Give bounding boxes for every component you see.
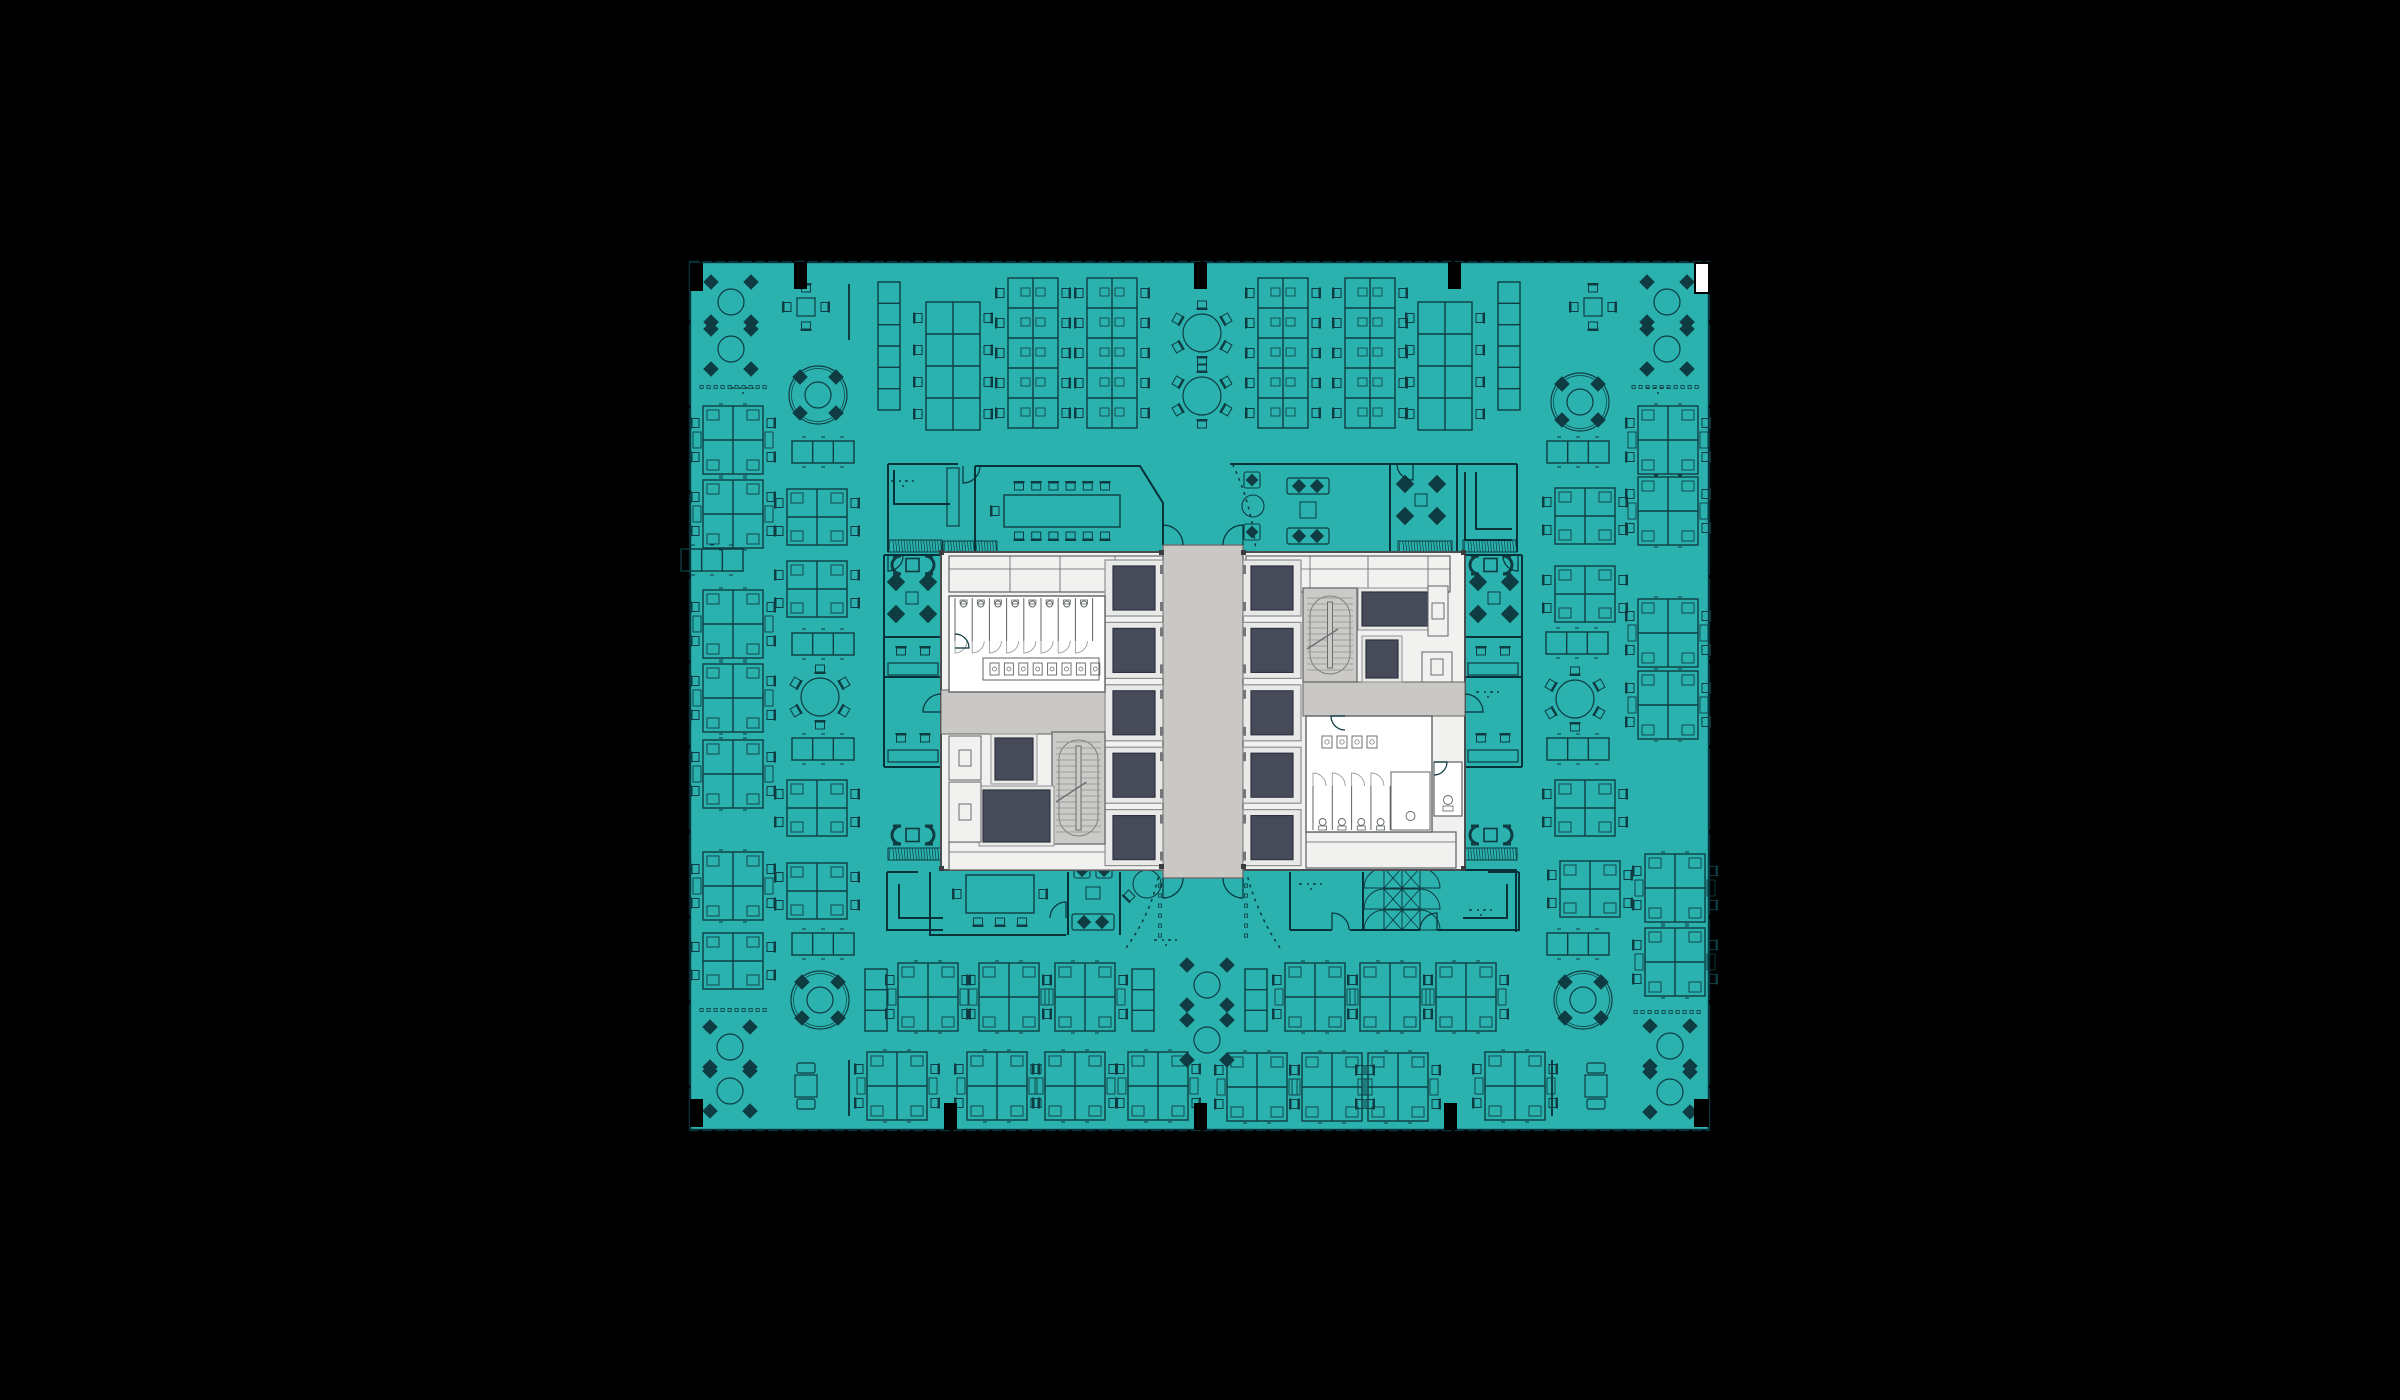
furniture-cluster4 bbox=[1548, 861, 1632, 917]
mullion-tick bbox=[1709, 405, 1716, 408]
elevator-cab bbox=[1113, 628, 1155, 672]
mullion-tick bbox=[683, 320, 690, 323]
core-bottom-band bbox=[1306, 832, 1456, 868]
core-column bbox=[939, 866, 944, 871]
mullion-tick bbox=[1623, 255, 1626, 262]
mullion-tick bbox=[1544, 255, 1547, 262]
mullion-tick bbox=[1557, 1130, 1560, 1137]
mullion-tick bbox=[1069, 255, 1072, 262]
mullion-tick bbox=[818, 255, 821, 262]
mullion-tick bbox=[1227, 1130, 1230, 1137]
column-stub bbox=[1194, 1103, 1207, 1130]
elevator-door-jamb bbox=[1160, 664, 1163, 673]
elevator-door-jamb bbox=[1243, 752, 1246, 761]
mullion-tick bbox=[963, 1130, 966, 1137]
service-room-fill bbox=[1366, 640, 1398, 678]
mullion-tick bbox=[1491, 1130, 1494, 1137]
mullion-tick bbox=[683, 915, 690, 918]
mullion-tick bbox=[1597, 1130, 1600, 1137]
mullion-tick bbox=[857, 255, 860, 262]
mullion-tick bbox=[1293, 1130, 1296, 1137]
mullion-tick bbox=[1649, 255, 1652, 262]
mullion-tick bbox=[725, 255, 728, 262]
furniture-cluster6 bbox=[1033, 1050, 1117, 1122]
mullion-tick bbox=[1649, 1130, 1652, 1137]
mullion-tick bbox=[1689, 1130, 1692, 1137]
furniture-cluster4 bbox=[1543, 566, 1627, 622]
mullion-tick bbox=[1504, 1130, 1507, 1137]
mullion-tick bbox=[1709, 745, 1716, 748]
restroom-room bbox=[1306, 716, 1432, 832]
mullion-tick bbox=[989, 255, 992, 262]
mullion-tick bbox=[1709, 660, 1716, 663]
mullion-tick bbox=[1372, 1130, 1375, 1137]
mullion-tick bbox=[937, 255, 940, 262]
mullion-tick bbox=[818, 1130, 821, 1137]
elevator-cab bbox=[1113, 753, 1155, 797]
mullion-tick bbox=[1709, 320, 1716, 323]
column-stub bbox=[944, 1103, 957, 1130]
elevator-cell bbox=[1105, 560, 1163, 616]
mullion-tick bbox=[1029, 255, 1032, 262]
mullion-tick bbox=[950, 1130, 953, 1137]
mullion-tick bbox=[1425, 1130, 1428, 1137]
mullion-tick bbox=[1676, 1130, 1679, 1137]
mullion-tick bbox=[976, 1130, 979, 1137]
mullion-tick bbox=[712, 1130, 715, 1137]
mullion-tick bbox=[1280, 1130, 1283, 1137]
furniture-cluster4 bbox=[775, 561, 859, 617]
elevator-door-jamb bbox=[1160, 852, 1163, 861]
mens-restroom bbox=[949, 596, 1105, 692]
mullion-tick bbox=[683, 1085, 690, 1088]
furniture-cluster6 bbox=[1626, 475, 1710, 547]
elevator-door-jamb bbox=[1160, 602, 1163, 611]
elevator-door-jamb bbox=[1243, 664, 1246, 673]
mullion-tick bbox=[1121, 1130, 1124, 1137]
mullion-tick bbox=[1240, 255, 1243, 262]
mullion-tick bbox=[1306, 255, 1309, 262]
service-room-fill bbox=[1362, 592, 1428, 626]
furniture-cluster6 bbox=[1473, 1050, 1557, 1122]
mullion-tick bbox=[683, 405, 690, 408]
mullion-tick bbox=[1253, 1130, 1256, 1137]
mullion-tick bbox=[1412, 255, 1415, 262]
mullion-tick bbox=[1267, 255, 1270, 262]
mullion-tick bbox=[950, 255, 953, 262]
mullion-tick bbox=[1214, 255, 1217, 262]
mullion-tick bbox=[1385, 255, 1388, 262]
core-column bbox=[1159, 864, 1164, 869]
elevator-door-jamb bbox=[1243, 690, 1246, 699]
mullion-tick bbox=[1003, 255, 1006, 262]
mullion-tick bbox=[1319, 1130, 1322, 1137]
mullion-tick bbox=[884, 255, 887, 262]
furniture-cluster6 bbox=[855, 1050, 939, 1122]
mullion-tick bbox=[910, 255, 913, 262]
mullion-tick bbox=[683, 745, 690, 748]
mullion-tick bbox=[844, 1130, 847, 1137]
elevator-door-jamb bbox=[1243, 727, 1246, 736]
elevator-cell bbox=[1105, 685, 1163, 741]
mullion-tick bbox=[1676, 255, 1679, 262]
furniture-cluster6 bbox=[1356, 1051, 1440, 1123]
elevator-cab bbox=[1251, 566, 1293, 610]
core-closet bbox=[949, 736, 981, 780]
mullion-tick bbox=[1465, 255, 1468, 262]
closet bbox=[949, 736, 981, 780]
core-closet bbox=[949, 782, 981, 842]
mullion-tick bbox=[871, 255, 874, 262]
mullion-tick bbox=[937, 1130, 940, 1137]
mullion-tick bbox=[989, 1130, 992, 1137]
furniture-bench8 bbox=[1406, 302, 1484, 430]
mullion-tick bbox=[1623, 1130, 1626, 1137]
mullion-tick bbox=[1517, 255, 1520, 262]
mullion-tick bbox=[683, 490, 690, 493]
furniture-cluster6 bbox=[886, 961, 970, 1033]
furniture-cluster6 bbox=[1424, 961, 1508, 1033]
mullion-tick bbox=[1069, 1130, 1072, 1137]
mullion-tick bbox=[1583, 1130, 1586, 1137]
furniture-cluster6 bbox=[1043, 961, 1127, 1033]
service-room-fill bbox=[995, 738, 1033, 780]
mullion-tick bbox=[1491, 255, 1494, 262]
elevator-door-jamb bbox=[1243, 815, 1246, 824]
furniture-cluster6 bbox=[691, 478, 775, 550]
service-room bbox=[1362, 636, 1402, 682]
mullion-tick bbox=[1346, 255, 1349, 262]
mullion-tick bbox=[1583, 255, 1586, 262]
mullion-tick bbox=[1306, 1130, 1309, 1137]
mullion-tick bbox=[1636, 255, 1639, 262]
elevator-cab bbox=[1113, 566, 1155, 610]
mullion-tick bbox=[791, 255, 794, 262]
core-closet bbox=[1422, 652, 1452, 682]
mullion-tick bbox=[791, 1130, 794, 1137]
mullion-tick bbox=[1663, 1130, 1666, 1137]
mullion-tick bbox=[1478, 1130, 1481, 1137]
mullion-tick bbox=[1135, 1130, 1138, 1137]
elevator-door-jamb bbox=[1243, 565, 1246, 574]
mullion-tick bbox=[1465, 1130, 1468, 1137]
mullion-tick bbox=[1346, 1130, 1349, 1137]
mullion-tick bbox=[1148, 1130, 1151, 1137]
mullion-tick bbox=[699, 1130, 702, 1137]
core-column bbox=[1241, 864, 1246, 869]
mullion-tick bbox=[805, 1130, 808, 1137]
building-core bbox=[939, 545, 1466, 878]
mullion-tick bbox=[1610, 1130, 1613, 1137]
corner-column bbox=[690, 263, 703, 291]
elevator-cell bbox=[1243, 560, 1301, 616]
elevator-cell bbox=[1105, 622, 1163, 678]
mullion-tick bbox=[1280, 255, 1283, 262]
elevator-cell bbox=[1243, 810, 1301, 866]
mullion-tick bbox=[1082, 1130, 1085, 1137]
mullion-tick bbox=[831, 255, 834, 262]
mullion-tick bbox=[1709, 575, 1716, 578]
mullion-tick bbox=[1082, 255, 1085, 262]
mullion-tick bbox=[1161, 1130, 1164, 1137]
mullion-tick bbox=[1372, 255, 1375, 262]
mullion-tick bbox=[1385, 1130, 1388, 1137]
mullion-tick bbox=[739, 255, 742, 262]
mullion-tick bbox=[923, 1130, 926, 1137]
mullion-tick bbox=[1709, 1085, 1716, 1088]
mullion-tick bbox=[1663, 255, 1666, 262]
service-room bbox=[979, 786, 1054, 846]
mullion-tick bbox=[976, 255, 979, 262]
mullion-tick bbox=[683, 575, 690, 578]
mullion-tick bbox=[765, 255, 768, 262]
elevator-cab bbox=[1251, 816, 1293, 860]
mullion-tick bbox=[805, 255, 808, 262]
furniture-cluster4 bbox=[1543, 780, 1627, 836]
floor-plan-drawing bbox=[0, 0, 2400, 1400]
mullion-tick bbox=[1570, 255, 1573, 262]
furniture-cluster6 bbox=[1633, 852, 1717, 924]
mullion-tick bbox=[1399, 255, 1402, 262]
service-room-fill bbox=[983, 790, 1050, 842]
mullion-tick bbox=[1161, 255, 1164, 262]
mullion-tick bbox=[1544, 1130, 1547, 1137]
mullion-tick bbox=[963, 255, 966, 262]
mullion-tick bbox=[712, 255, 715, 262]
mullion-tick bbox=[1174, 255, 1177, 262]
mullion-tick bbox=[725, 1130, 728, 1137]
mullion-tick bbox=[1108, 255, 1111, 262]
stairwell bbox=[1303, 588, 1357, 682]
mullion-tick bbox=[1267, 1130, 1270, 1137]
furniture-cluster6 bbox=[1290, 1051, 1374, 1123]
mullion-tick bbox=[683, 660, 690, 663]
mullion-tick bbox=[1095, 255, 1098, 262]
furniture-cluster6 bbox=[1273, 961, 1357, 1033]
furniture-cluster4 bbox=[691, 933, 775, 989]
elevator-cab bbox=[1251, 628, 1293, 672]
mullion-tick bbox=[1187, 1130, 1190, 1137]
mullion-tick bbox=[1504, 255, 1507, 262]
mullion-tick bbox=[1135, 255, 1138, 262]
mullion-tick bbox=[884, 1130, 887, 1137]
mullion-tick bbox=[1399, 1130, 1402, 1137]
column-stub bbox=[1448, 262, 1461, 289]
elevator-cab bbox=[1251, 691, 1293, 735]
service-room bbox=[991, 734, 1037, 784]
column-stub bbox=[1194, 262, 1207, 289]
column-stub bbox=[1444, 1103, 1457, 1130]
mullion-tick bbox=[752, 1130, 755, 1137]
mullion-tick bbox=[765, 1130, 768, 1137]
mullion-tick bbox=[1570, 1130, 1573, 1137]
elevator-cab bbox=[1113, 691, 1155, 735]
mullion-tick bbox=[1095, 1130, 1098, 1137]
mullion-tick bbox=[1333, 1130, 1336, 1137]
floor-plan-canvas bbox=[0, 0, 2400, 1400]
elevator-cab bbox=[1251, 753, 1293, 797]
core-vestibule bbox=[1303, 682, 1465, 716]
elevator-door-jamb bbox=[1160, 627, 1163, 636]
core-column bbox=[1159, 550, 1164, 555]
mullion-tick bbox=[1055, 255, 1058, 262]
furniture-cluster4 bbox=[775, 489, 859, 545]
elevator-door-jamb bbox=[1160, 727, 1163, 736]
mullion-tick bbox=[1438, 1130, 1441, 1137]
mullion-tick bbox=[1709, 1000, 1716, 1003]
mullion-tick bbox=[1359, 255, 1362, 262]
elevator-cell bbox=[1243, 747, 1301, 803]
elevator-cell bbox=[1243, 685, 1301, 741]
mullion-tick bbox=[1412, 1130, 1415, 1137]
elevator-door-jamb bbox=[1243, 789, 1246, 798]
closet bbox=[1428, 586, 1448, 636]
mullion-tick bbox=[1702, 255, 1705, 262]
furniture-cluster6 bbox=[1626, 669, 1710, 741]
core-column bbox=[1461, 866, 1466, 871]
furniture-cluster6 bbox=[691, 588, 775, 660]
mullion-tick bbox=[1016, 255, 1019, 262]
mullion-tick bbox=[1451, 255, 1454, 262]
mullion-tick bbox=[831, 1130, 834, 1137]
furniture-cluster6 bbox=[1348, 961, 1432, 1033]
elevator-door-jamb bbox=[1243, 627, 1246, 636]
mullion-tick bbox=[739, 1130, 742, 1137]
elevator-cell bbox=[1243, 622, 1301, 678]
mullion-tick bbox=[1121, 255, 1124, 262]
mullion-tick bbox=[1319, 255, 1322, 262]
mullion-tick bbox=[871, 1130, 874, 1137]
mullion-tick bbox=[1293, 255, 1296, 262]
mullion-tick bbox=[1359, 1130, 1362, 1137]
mullion-tick bbox=[1029, 1130, 1032, 1137]
mullion-tick bbox=[1201, 1130, 1204, 1137]
service-room bbox=[1358, 588, 1432, 630]
furniture-cluster4 bbox=[1543, 488, 1627, 544]
elevator-door-jamb bbox=[1243, 852, 1246, 861]
furniture-cluster6 bbox=[1116, 1050, 1200, 1122]
furniture-cluster4 bbox=[775, 863, 859, 919]
core-column bbox=[939, 550, 944, 555]
mullion-tick bbox=[923, 255, 926, 262]
mullion-tick bbox=[1478, 255, 1481, 262]
mullion-tick bbox=[1438, 255, 1441, 262]
corner-column bbox=[1694, 1099, 1709, 1127]
corner-column bbox=[690, 1099, 703, 1127]
mullion-tick bbox=[778, 255, 781, 262]
mullion-tick bbox=[1597, 255, 1600, 262]
mullion-tick bbox=[1709, 830, 1716, 833]
mullion-tick bbox=[1517, 1130, 1520, 1137]
core-closet bbox=[1428, 586, 1448, 636]
furniture-cluster6 bbox=[1626, 404, 1710, 476]
mullion-tick bbox=[897, 255, 900, 262]
mullion-tick bbox=[910, 1130, 913, 1137]
elevator-cell bbox=[1105, 747, 1163, 803]
furniture-cluster6 bbox=[691, 738, 775, 810]
mullion-tick bbox=[752, 255, 755, 262]
mullion-tick bbox=[1227, 255, 1230, 262]
mullion-tick bbox=[1148, 255, 1151, 262]
mullion-tick bbox=[1709, 915, 1716, 918]
furniture-cluster6 bbox=[691, 662, 775, 734]
core-column bbox=[1461, 550, 1466, 555]
furniture-cluster6 bbox=[691, 850, 775, 922]
mullion-tick bbox=[683, 1000, 690, 1003]
mullion-tick bbox=[1042, 255, 1045, 262]
column-stub bbox=[794, 262, 807, 289]
mullion-tick bbox=[1042, 1130, 1045, 1137]
mullion-tick bbox=[1214, 1130, 1217, 1137]
mullion-tick bbox=[1201, 255, 1204, 262]
elevator-lobby bbox=[1163, 545, 1243, 878]
core-vestibule bbox=[941, 690, 1105, 734]
furniture-cluster6 bbox=[1633, 926, 1717, 998]
mullion-tick bbox=[1531, 255, 1534, 262]
corner-column-white bbox=[1695, 263, 1709, 293]
mullion-tick bbox=[844, 255, 847, 262]
elevator-door-jamb bbox=[1160, 752, 1163, 761]
elevator-door-jamb bbox=[1243, 602, 1246, 611]
elevator-cell bbox=[1105, 810, 1163, 866]
mullion-tick bbox=[1055, 1130, 1058, 1137]
furniture-cluster6 bbox=[1215, 1051, 1299, 1123]
closet bbox=[949, 782, 981, 842]
mullion-tick bbox=[1240, 1130, 1243, 1137]
mullion-tick bbox=[1003, 1130, 1006, 1137]
furniture-cluster6 bbox=[967, 961, 1051, 1033]
mullion-tick bbox=[1610, 255, 1613, 262]
mullion-tick bbox=[1451, 1130, 1454, 1137]
mullion-tick bbox=[1333, 255, 1336, 262]
mullion-tick bbox=[1253, 255, 1256, 262]
stairwell bbox=[1052, 732, 1105, 844]
mullion-tick bbox=[778, 1130, 781, 1137]
mullion-tick bbox=[857, 1130, 860, 1137]
furniture-cluster6 bbox=[1626, 597, 1710, 669]
elevator-door-jamb bbox=[1160, 789, 1163, 798]
elevator-door-jamb bbox=[1160, 690, 1163, 699]
mullion-tick bbox=[699, 255, 702, 262]
mullion-tick bbox=[683, 830, 690, 833]
furniture-cluster6 bbox=[955, 1050, 1039, 1122]
mullion-tick bbox=[897, 1130, 900, 1137]
mullion-tick bbox=[1557, 255, 1560, 262]
mullion-tick bbox=[1016, 1130, 1019, 1137]
mullion-tick bbox=[1689, 255, 1692, 262]
mullion-tick bbox=[1174, 1130, 1177, 1137]
mullion-tick bbox=[1636, 1130, 1639, 1137]
mullion-tick bbox=[1187, 255, 1190, 262]
core-column bbox=[1241, 550, 1246, 555]
closet bbox=[1422, 652, 1452, 682]
furniture-bench8 bbox=[914, 302, 992, 430]
furniture-cluster6 bbox=[691, 404, 775, 476]
elevator-door-jamb bbox=[1160, 565, 1163, 574]
elevator-door-jamb bbox=[1160, 815, 1163, 824]
furniture-cluster4 bbox=[775, 780, 859, 836]
mullion-tick bbox=[1531, 1130, 1534, 1137]
mullion-tick bbox=[1108, 1130, 1111, 1137]
mullion-tick bbox=[1702, 1130, 1705, 1137]
wc-room bbox=[1434, 762, 1462, 816]
floor-plan bbox=[681, 255, 1717, 1137]
mullion-tick bbox=[1425, 255, 1428, 262]
elevator-cab bbox=[1113, 816, 1155, 860]
